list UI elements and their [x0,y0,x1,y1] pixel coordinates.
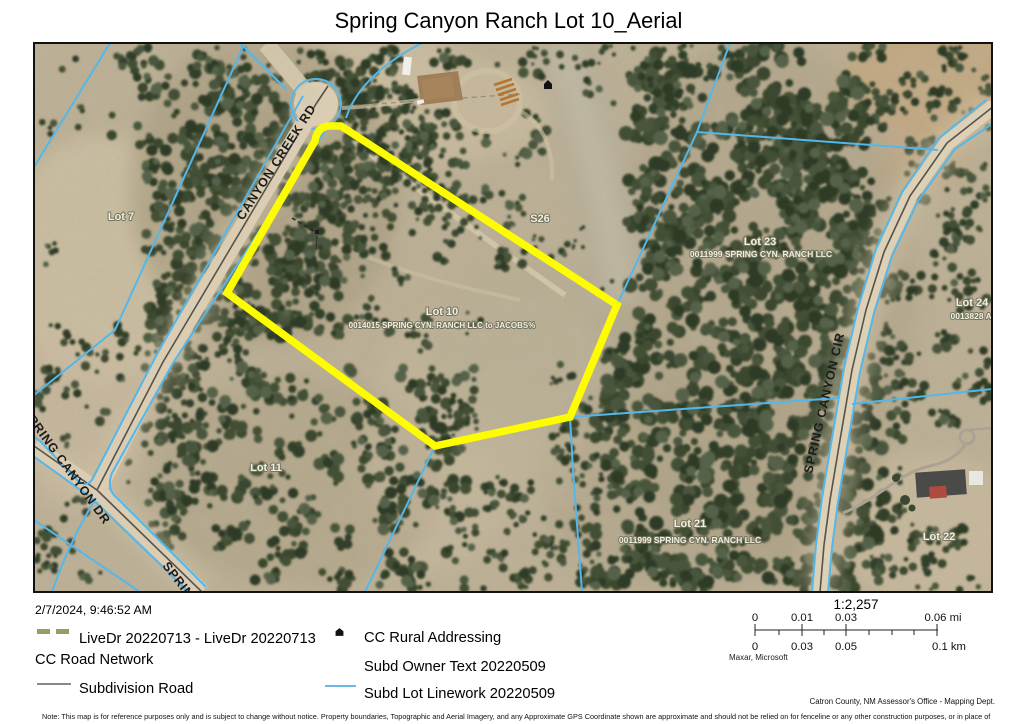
svg-text:0: 0 [752,641,758,650]
svg-text:0.06 mi: 0.06 mi [924,612,961,624]
svg-text:0: 0 [752,612,758,624]
svg-text:S26: S26 [530,213,550,225]
svg-text:0011999 SPRING CYN. RANCH LLC: 0011999 SPRING CYN. RANCH LLC [619,535,761,545]
svg-text:0011999 SPRING CYN. RANCH LLC: 0011999 SPRING CYN. RANCH LLC [690,249,832,259]
svg-text:0.1 km: 0.1 km [932,641,966,650]
svg-text:Lot 7: Lot 7 [108,211,134,223]
svg-text:Lot 23: Lot 23 [744,236,776,248]
svg-text:0013828 A.&K. |: 0013828 A.&K. | [950,311,991,321]
svg-text:0014015 SPRING CYN. RANCH LLC: 0014015 SPRING CYN. RANCH LLC to JACOBS% [349,321,536,330]
svg-text:0.03: 0.03 [835,612,857,624]
svg-text:0.01: 0.01 [791,612,813,624]
svg-text:0.05: 0.05 [835,641,857,650]
svg-text:0.03: 0.03 [791,641,813,650]
svg-text:Lot 24: Lot 24 [956,297,989,309]
svg-text:Lot 11: Lot 11 [250,462,282,474]
svg-text:Lot 10: Lot 10 [426,306,458,318]
svg-text:Lot 22: Lot 22 [923,531,955,543]
svg-text:Lot 21: Lot 21 [674,518,706,530]
